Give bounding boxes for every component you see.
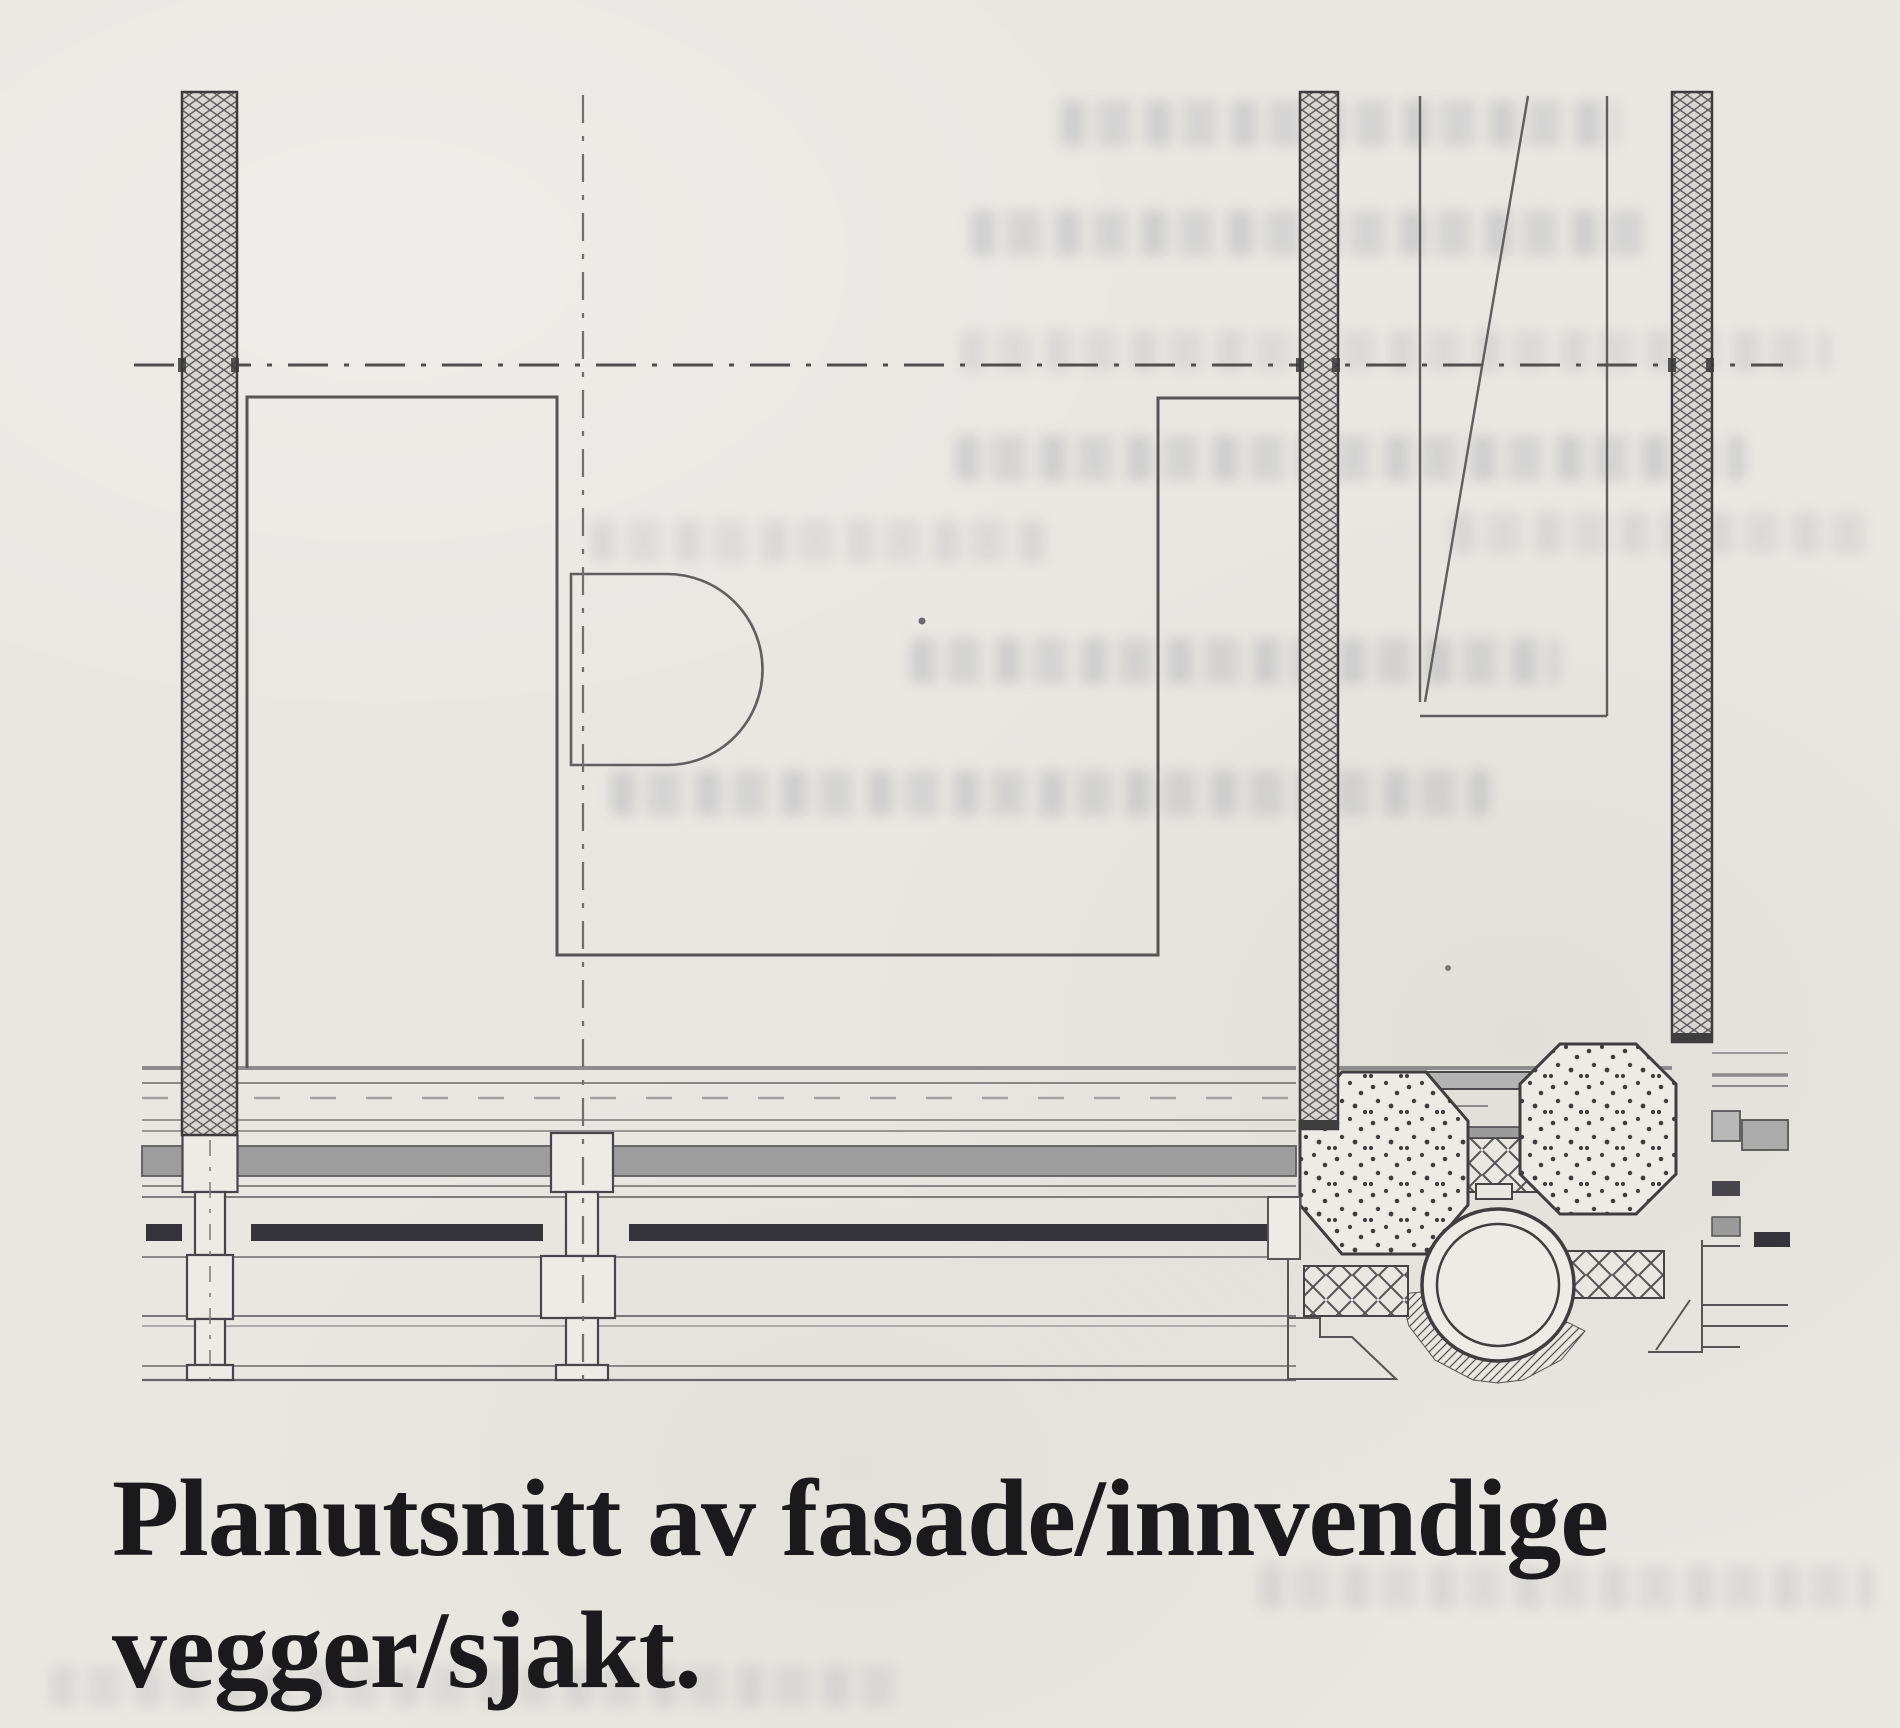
interior-wall-right bbox=[1672, 92, 1712, 1042]
paper-speck bbox=[919, 618, 926, 625]
insulation-patch bbox=[1304, 1266, 1408, 1316]
mullion-left bbox=[183, 1135, 238, 1386]
walls bbox=[182, 92, 1712, 1135]
facade-gray-band bbox=[142, 1146, 1296, 1176]
figure-caption: Planutsnitt av fasade/innvendige vegger/… bbox=[112, 1452, 1792, 1716]
interior-wall-center bbox=[1300, 92, 1338, 1129]
caption-line-2: vegger/sjakt. bbox=[112, 1584, 1792, 1716]
pipe-circle bbox=[1422, 1209, 1574, 1361]
paper-speck bbox=[1445, 965, 1451, 971]
exterior-wall-left bbox=[182, 92, 237, 1135]
column-pipe-cluster bbox=[1268, 1044, 1788, 1383]
door-niche bbox=[571, 574, 763, 765]
mullion-center bbox=[541, 1133, 615, 1380]
shaft-outline bbox=[1420, 96, 1607, 716]
column-octagon-right bbox=[1520, 1044, 1676, 1214]
scanned-page: Planutsnitt av fasade/innvendige vegger/… bbox=[0, 0, 1900, 1728]
shaft-diagonal bbox=[1425, 96, 1528, 702]
room-outline bbox=[247, 397, 1300, 1068]
caption-line-1: Planutsnitt av fasade/innvendige bbox=[112, 1452, 1792, 1584]
